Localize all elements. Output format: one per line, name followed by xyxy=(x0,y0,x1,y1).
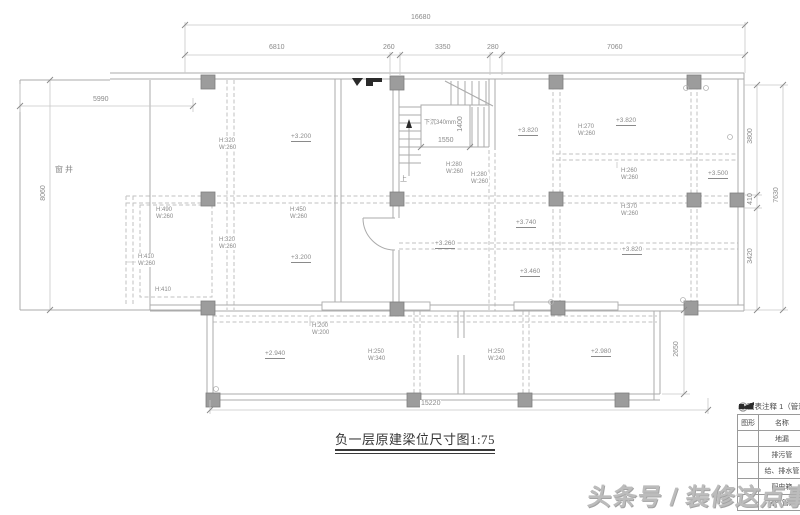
beam-label: H:370W:260 xyxy=(620,204,639,217)
beam-label: H:410 xyxy=(154,287,172,294)
stair-up-label: 上 xyxy=(400,174,407,184)
dim-label: 260 xyxy=(382,44,396,52)
drawing-title: 负一层原建梁位尺寸图1:75 xyxy=(330,429,500,454)
fixture-circles xyxy=(214,86,733,392)
elevation-label: +3.260 xyxy=(434,240,456,249)
dim-label: 280 xyxy=(486,44,500,52)
sliding-door-recess xyxy=(322,302,430,310)
door-swing xyxy=(363,218,395,250)
dim-label: 5990 xyxy=(92,96,110,104)
courtyard-label: 窗井 xyxy=(55,164,75,175)
beam-label: H:320W:260 xyxy=(218,138,237,151)
stair-sunken-label: 下沉340mm xyxy=(424,120,456,127)
dim-label: 7060 xyxy=(606,44,624,52)
elevation-label: +3.820 xyxy=(615,117,637,126)
dim-label: 6810 xyxy=(268,44,286,52)
elevation-label: +3.460 xyxy=(519,268,541,277)
elevation-label: +2.980 xyxy=(590,348,612,357)
legend-row: 排污管 xyxy=(738,447,800,463)
beam-label: H:320W:260 xyxy=(218,237,237,250)
dim-label: 15220 xyxy=(420,400,441,408)
watermark: 头条号 / 装修这点事 xyxy=(586,477,800,512)
beam-label: H:200W:200 xyxy=(311,323,330,336)
elevation-label: +3.740 xyxy=(515,219,537,228)
exhaust-duct-icon xyxy=(737,401,755,410)
distribution-box-symbol xyxy=(352,78,382,86)
legend-header-name: 名称 xyxy=(759,415,800,431)
beam-label: H:250W:240 xyxy=(487,349,506,362)
legend-header-symbol: 图形 xyxy=(738,415,759,431)
dim-label: 8060 xyxy=(40,177,48,209)
beam-label: H:260W:260 xyxy=(620,168,639,181)
dim-label: 3800 xyxy=(747,120,755,152)
elevation-label: +3.500 xyxy=(707,170,729,179)
beam-label: H:250W:340 xyxy=(367,349,386,362)
dim-label: 2650 xyxy=(673,333,681,365)
dim-label: 16680 xyxy=(410,14,431,22)
beam-label: H:280W:260 xyxy=(445,162,464,175)
beam-label: H:410W:260 xyxy=(137,254,156,267)
elevation-label: +3.200 xyxy=(290,133,312,142)
beam-label: H:270W:260 xyxy=(577,124,596,137)
legend-name: 地漏 xyxy=(759,431,800,447)
dim-label: 410 xyxy=(747,183,755,215)
beam-label: H:280W:260 xyxy=(470,172,489,185)
elevation-label: +3.820 xyxy=(517,127,539,136)
dim-label: 3350 xyxy=(434,44,452,52)
sliding-door-recess xyxy=(514,302,618,310)
elevation-label: +3.820 xyxy=(621,246,643,255)
elevation-label: +3.200 xyxy=(290,254,312,263)
dim-label: 3420 xyxy=(747,240,755,272)
legend-name: 排污管 xyxy=(759,447,800,463)
dim-label: 7630 xyxy=(773,179,781,211)
legend-row: 地漏 xyxy=(738,431,800,447)
floor-plan-canvas: 16680 6810 260 3350 280 7060 5990 8060 3… xyxy=(0,0,800,515)
dim-label: 1400 xyxy=(457,108,465,140)
dim-label: 1550 xyxy=(437,137,455,145)
elevation-label: +2.940 xyxy=(264,350,286,359)
beam-label: H:490W:260 xyxy=(155,207,174,220)
beam-label: H:450W:260 xyxy=(289,207,308,220)
